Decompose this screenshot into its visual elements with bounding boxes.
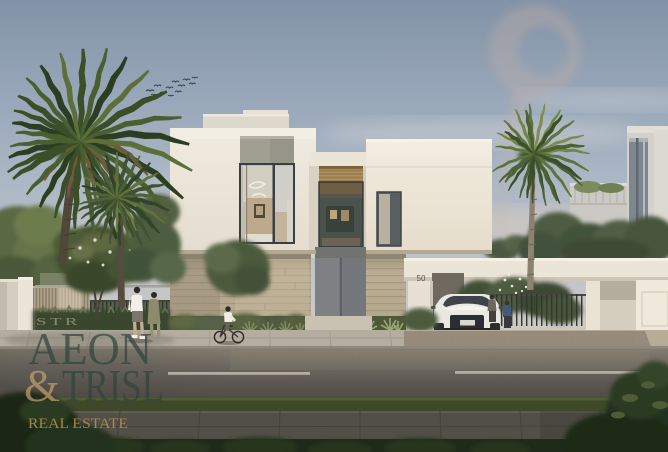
svg-text:TRISL: TRISL: [62, 360, 164, 411]
svg-text:50: 50: [417, 274, 426, 283]
svg-text:&: &: [24, 361, 60, 411]
svg-text:REAL ESTATE: REAL ESTATE: [28, 416, 128, 432]
